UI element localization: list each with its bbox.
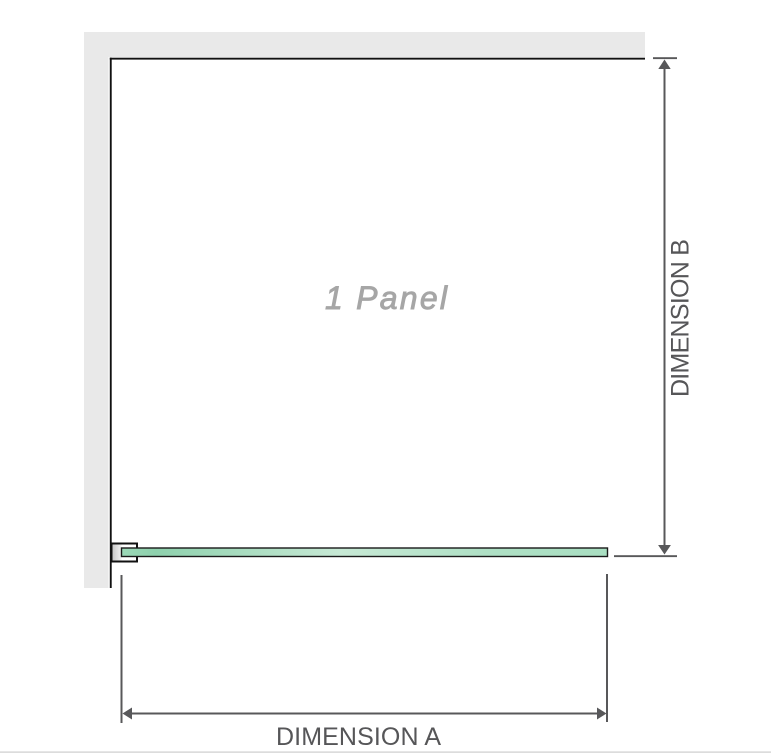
svg-text:DIMENSION B: DIMENSION B	[667, 239, 695, 397]
svg-text:1 Panel: 1 Panel	[325, 280, 448, 316]
svg-text:DIMENSION A: DIMENSION A	[276, 723, 441, 751]
